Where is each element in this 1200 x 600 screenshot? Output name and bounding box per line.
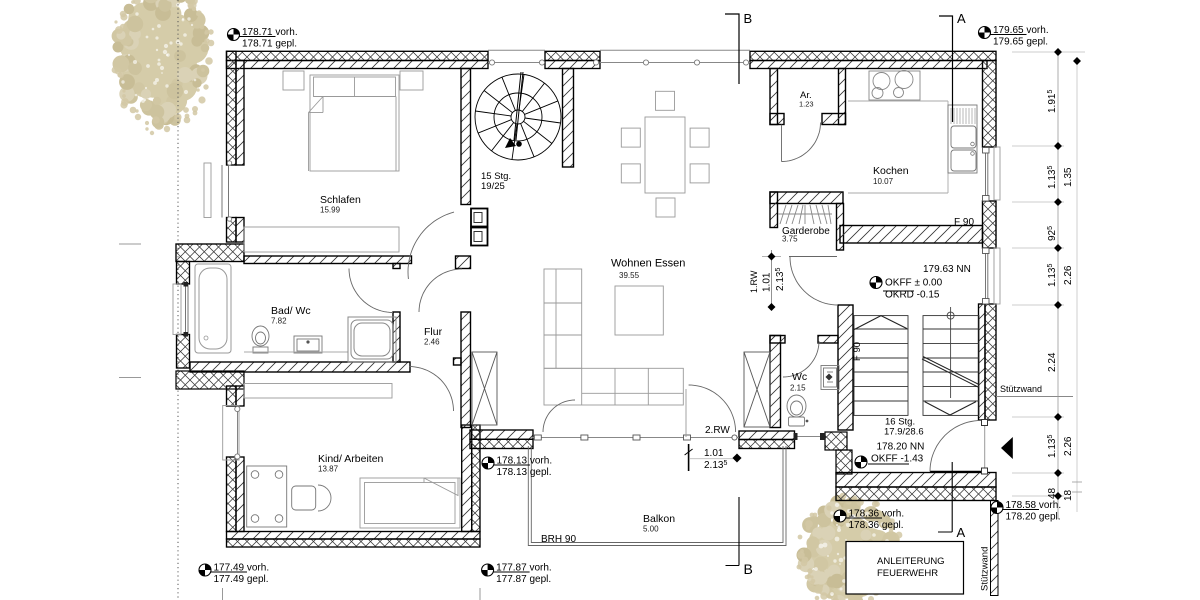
svg-text:3.75: 3.75 bbox=[782, 235, 798, 244]
svg-text:18: 18 bbox=[1063, 489, 1074, 501]
svg-text:179.65 gepl.: 179.65 gepl. bbox=[993, 37, 1048, 48]
svg-text:15.99: 15.99 bbox=[320, 206, 341, 215]
svg-text:7.82: 7.82 bbox=[271, 317, 287, 326]
svg-text:177.49 gepl.: 177.49 gepl. bbox=[214, 574, 269, 585]
svg-text:1.01: 1.01 bbox=[762, 272, 773, 292]
svg-text:Balkon: Balkon bbox=[643, 513, 675, 525]
svg-text:13.87: 13.87 bbox=[318, 465, 339, 474]
svg-text:Wc: Wc bbox=[792, 371, 807, 383]
svg-text:2.26: 2.26 bbox=[1063, 265, 1074, 285]
svg-text:178.36 vorh.: 178.36 vorh. bbox=[849, 509, 905, 520]
svg-text:48: 48 bbox=[1047, 487, 1058, 499]
svg-text:19/25: 19/25 bbox=[481, 181, 505, 192]
svg-text:178.13 vorh.: 178.13 vorh. bbox=[497, 456, 553, 467]
svg-text:OKRD -0.15: OKRD -0.15 bbox=[885, 290, 940, 301]
svg-text:B: B bbox=[744, 561, 753, 577]
svg-text:178.20 gepl.: 178.20 gepl. bbox=[1006, 512, 1061, 523]
svg-text:2.24: 2.24 bbox=[1047, 352, 1058, 372]
svg-text:178.13 gepl.: 178.13 gepl. bbox=[497, 467, 552, 478]
svg-text:2.RW: 2.RW bbox=[705, 425, 730, 436]
svg-text:10.07: 10.07 bbox=[873, 177, 894, 186]
svg-text:OKFF -1.43: OKFF -1.43 bbox=[871, 454, 924, 465]
svg-text:2.15: 2.15 bbox=[790, 384, 806, 393]
svg-text:178.20 NN: 178.20 NN bbox=[877, 442, 925, 453]
svg-text:1.RW: 1.RW bbox=[749, 270, 759, 293]
svg-text:F 90: F 90 bbox=[954, 217, 974, 228]
svg-text:Schlafen: Schlafen bbox=[320, 194, 361, 206]
svg-text:177.87 vorh.: 177.87 vorh. bbox=[496, 563, 552, 574]
svg-text:1.23: 1.23 bbox=[799, 100, 814, 109]
svg-text:Stützwand: Stützwand bbox=[980, 547, 991, 591]
svg-text:2.46: 2.46 bbox=[424, 338, 440, 347]
svg-text:Flur: Flur bbox=[424, 326, 443, 338]
svg-text:ANLEITERUNG: ANLEITERUNG bbox=[877, 556, 945, 567]
svg-text:178.58 vorh.: 178.58 vorh. bbox=[1006, 500, 1062, 511]
svg-text:179.63 NN: 179.63 NN bbox=[923, 264, 971, 275]
svg-text:Wohnen Essen: Wohnen Essen bbox=[611, 258, 685, 270]
svg-text:177.87 gepl.: 177.87 gepl. bbox=[496, 574, 551, 585]
svg-text:FEUERWEHR: FEUERWEHR bbox=[877, 568, 938, 579]
svg-text:1.35: 1.35 bbox=[1063, 167, 1074, 187]
svg-text:179.65 vorh.: 179.65 vorh. bbox=[993, 25, 1049, 36]
svg-text:178.71 gepl.: 178.71 gepl. bbox=[242, 39, 297, 50]
svg-text:177.49 vorh.: 177.49 vorh. bbox=[214, 563, 270, 574]
svg-text:B: B bbox=[744, 11, 753, 26]
svg-text:1.01: 1.01 bbox=[704, 448, 724, 459]
svg-text:5.00: 5.00 bbox=[643, 525, 659, 534]
svg-text:Stützwand: Stützwand bbox=[1000, 384, 1042, 394]
svg-text:Bad/ Wc: Bad/ Wc bbox=[271, 305, 311, 317]
svg-text:17.9/28.6: 17.9/28.6 bbox=[884, 427, 924, 438]
svg-text:Kind/ Arbeiten: Kind/ Arbeiten bbox=[318, 453, 384, 465]
svg-text:178.71 vorh.: 178.71 vorh. bbox=[242, 27, 298, 38]
svg-text:39.55: 39.55 bbox=[619, 271, 640, 280]
svg-text:178.36 gepl.: 178.36 gepl. bbox=[849, 520, 904, 531]
svg-text:Kochen: Kochen bbox=[873, 165, 909, 177]
svg-text:BRH 90: BRH 90 bbox=[541, 534, 576, 545]
svg-text:A: A bbox=[957, 11, 966, 26]
svg-text:OKFF ± 0.00: OKFF ± 0.00 bbox=[885, 278, 943, 289]
svg-text:2.26: 2.26 bbox=[1063, 436, 1074, 456]
svg-text:F 90: F 90 bbox=[852, 342, 863, 361]
svg-text:A: A bbox=[957, 525, 966, 540]
